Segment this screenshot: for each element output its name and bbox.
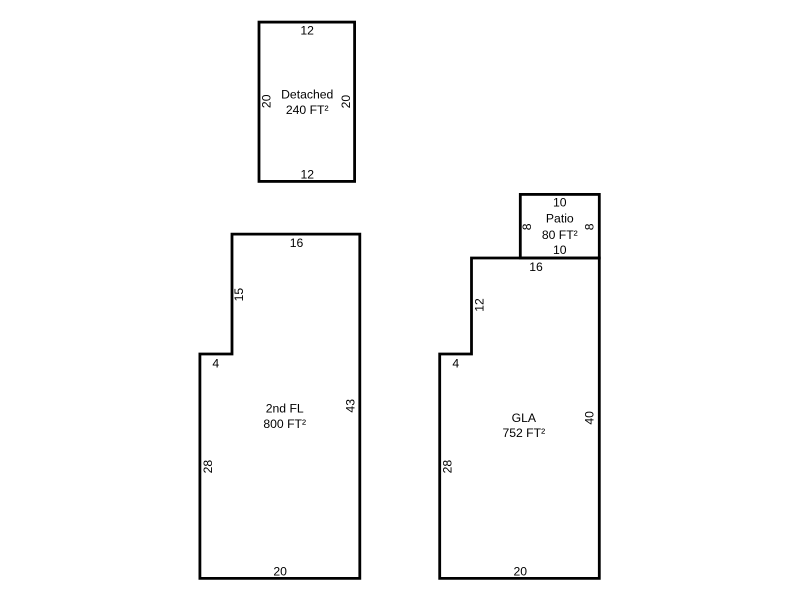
svg-text:80 FT²: 80 FT² — [542, 228, 578, 242]
svg-text:752 FT²: 752 FT² — [502, 426, 545, 440]
svg-text:4: 4 — [452, 356, 459, 370]
svg-text:Patio: Patio — [546, 211, 574, 225]
svg-text:40: 40 — [582, 411, 596, 425]
svg-text:20: 20 — [339, 95, 353, 109]
svg-text:20: 20 — [259, 94, 273, 108]
svg-text:10: 10 — [553, 196, 567, 210]
svg-text:20: 20 — [514, 565, 528, 579]
svg-text:15: 15 — [232, 288, 246, 302]
svg-text:12: 12 — [300, 24, 314, 38]
svg-text:GLA: GLA — [512, 411, 537, 425]
svg-text:12: 12 — [473, 298, 487, 312]
svg-text:20: 20 — [273, 565, 287, 579]
svg-text:8: 8 — [583, 223, 597, 230]
svg-text:12: 12 — [301, 168, 315, 182]
svg-text:8: 8 — [520, 223, 534, 230]
svg-text:28: 28 — [441, 460, 455, 474]
svg-text:240 FT²: 240 FT² — [286, 103, 329, 117]
svg-text:43: 43 — [344, 399, 358, 413]
svg-text:4: 4 — [212, 356, 219, 370]
svg-text:Detached: Detached — [281, 88, 333, 102]
svg-text:16: 16 — [290, 236, 304, 250]
svg-text:10: 10 — [553, 243, 567, 257]
svg-text:28: 28 — [201, 460, 215, 474]
svg-text:800 FT²: 800 FT² — [263, 417, 306, 431]
svg-text:16: 16 — [529, 260, 543, 274]
svg-text:2nd FL: 2nd FL — [266, 402, 304, 416]
